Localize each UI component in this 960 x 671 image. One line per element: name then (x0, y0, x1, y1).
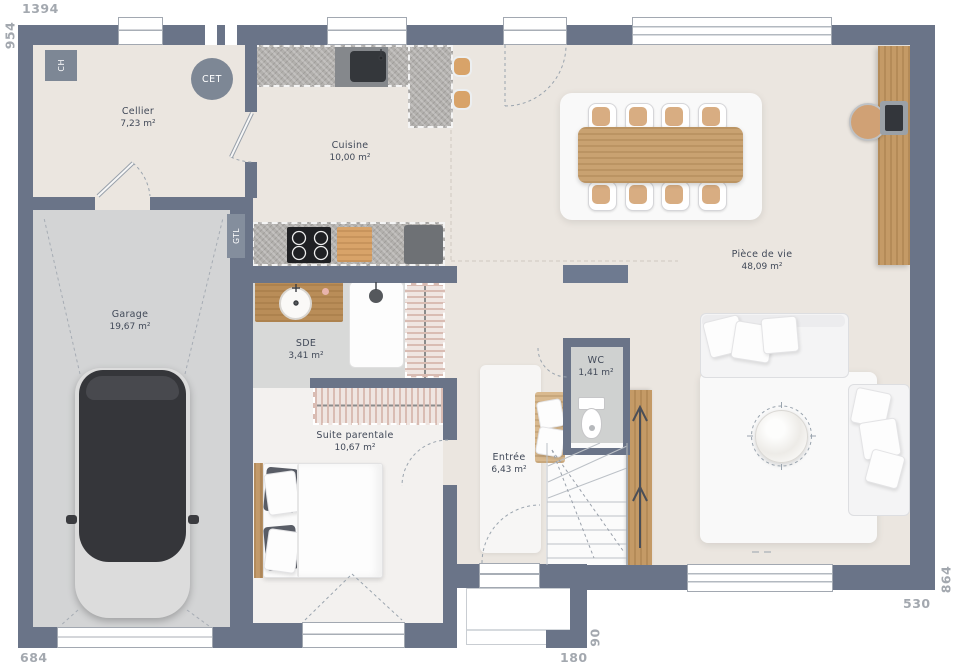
dim-porch-depth: 90 (588, 628, 603, 646)
room-label-garage: Garage 19,67 m² (109, 309, 150, 332)
room-label-suite: Suite parentale 10,67 m² (316, 430, 393, 453)
dim-top: 1394 (22, 1, 59, 16)
room-label-sde: SDE 3,41 m² (288, 338, 323, 361)
room-label-cellier: Cellier 7,23 m² (120, 106, 155, 129)
stair-treads (547, 443, 627, 565)
dim-right: 864 (938, 566, 953, 594)
stair-walk-lines (552, 450, 624, 558)
room-label-piece-de-vie: Pièce de vie 48,09 m² (732, 249, 793, 272)
dim-left: 954 (2, 22, 17, 50)
room-label-cuisine: Cuisine 10,00 m² (329, 140, 370, 163)
faucets (292, 49, 383, 305)
car-guides (44, 218, 223, 626)
dim-porch-width: 180 (560, 650, 588, 665)
room-label-wc: WC 1,41 m² (578, 355, 613, 378)
coffee-table-outline (747, 402, 816, 552)
floor-plan: Cellier 7,23 m² Cuisine 10,00 m² Garage … (0, 0, 960, 671)
door-swing-arcs (133, 45, 567, 620)
dim-bottom-left: 684 (20, 650, 48, 665)
room-label-entree: Entrée 6,43 m² (491, 452, 526, 475)
tag-gtl: GTL (227, 214, 245, 258)
zone-line (451, 130, 678, 261)
dim-bottom-right: 530 (903, 596, 931, 611)
annotations-overlay (0, 0, 960, 671)
stair-arrow (633, 407, 647, 548)
cooktop-burners (293, 232, 328, 260)
tag-ch: CH (45, 50, 77, 81)
tag-cet: CET (191, 58, 233, 100)
